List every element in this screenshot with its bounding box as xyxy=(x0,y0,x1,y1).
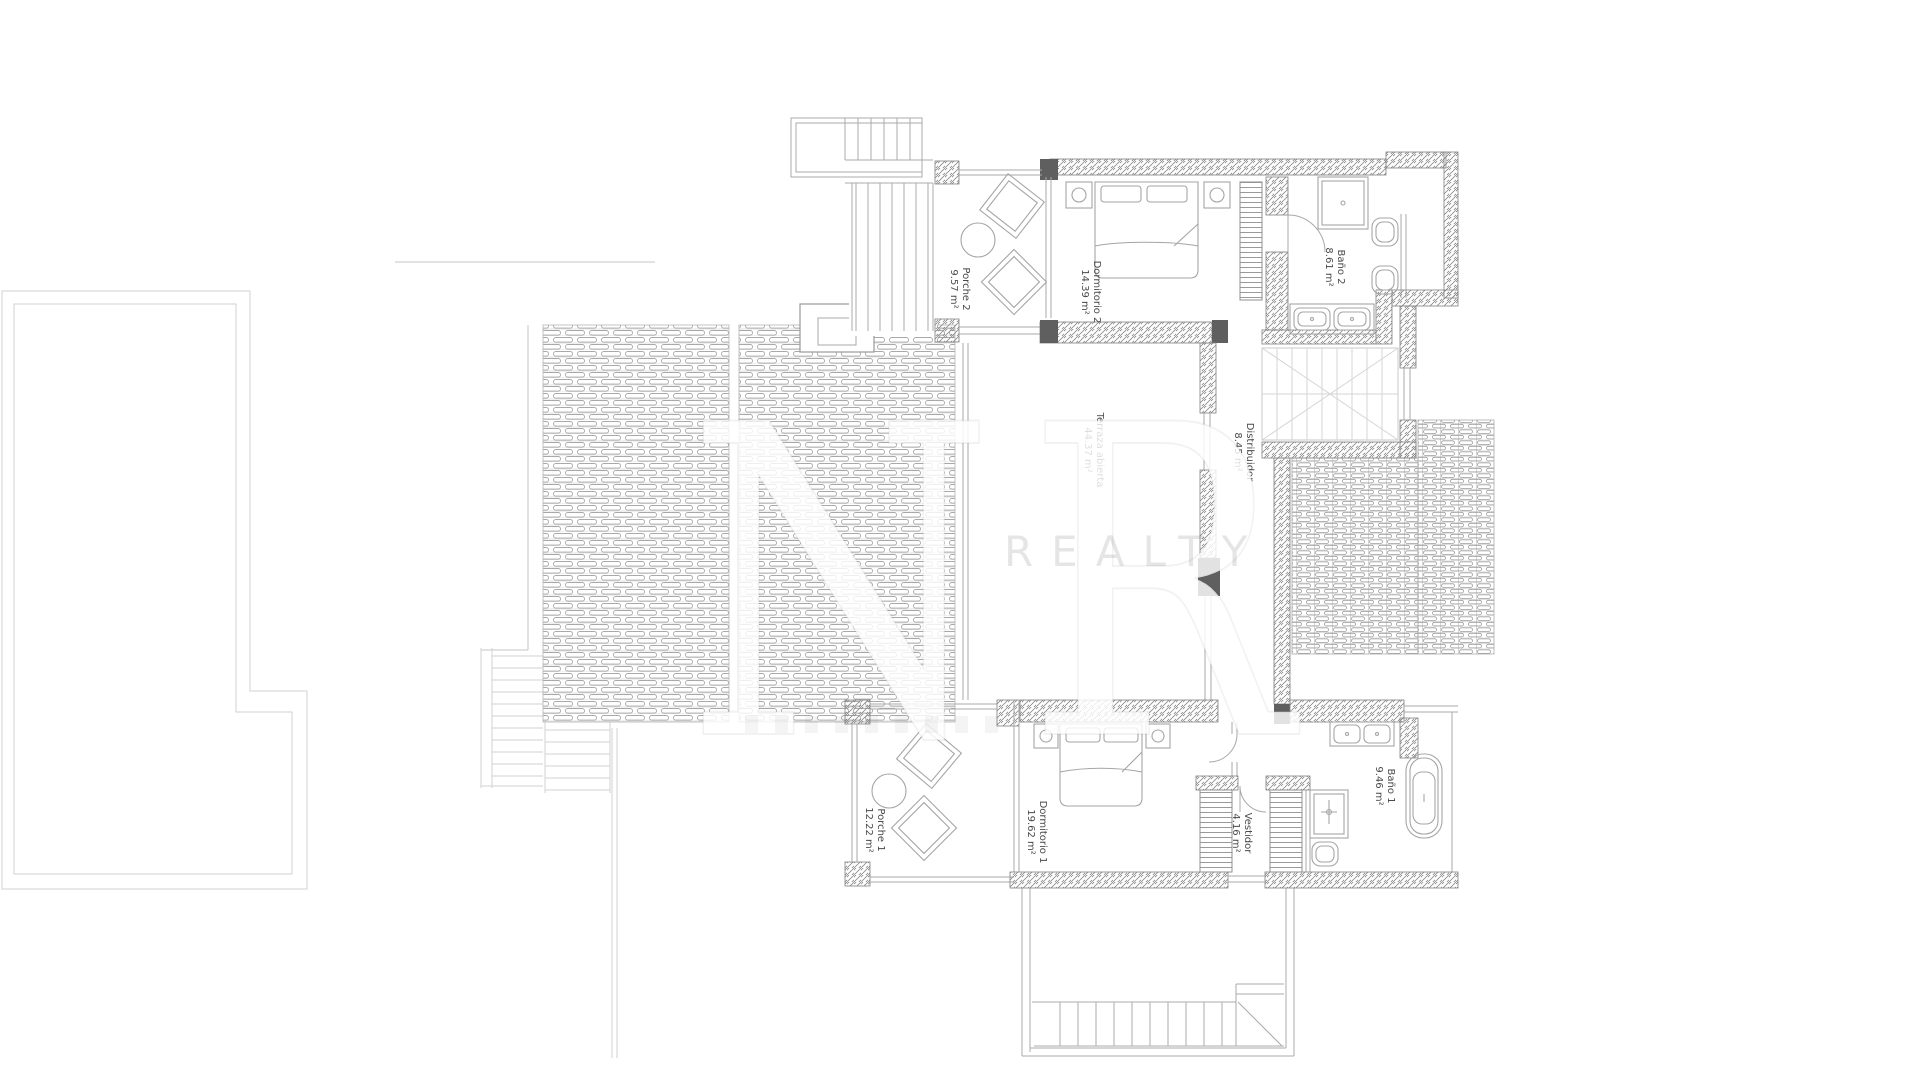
room-name: Porche 2 xyxy=(960,267,971,310)
pool xyxy=(2,291,307,889)
room-area: 9.57 m² xyxy=(948,269,959,308)
double-sink xyxy=(1290,304,1374,334)
bathtub xyxy=(1406,754,1442,838)
floor-plan-page: Porche 2 9.57 m² Dormitorio 2 14.39 m² B… xyxy=(0,0,1920,1080)
room-name: Dormitorio 2 xyxy=(1091,261,1102,324)
watermark-realty-text: REALTY xyxy=(1004,527,1265,576)
label-bano-1: Baño 1 9.46 m² xyxy=(1373,766,1396,805)
room-name: Baño 2 xyxy=(1335,250,1346,285)
nightstand xyxy=(1066,182,1092,208)
armchair xyxy=(981,249,1046,314)
room-name: Baño 1 xyxy=(1385,769,1396,804)
watermark-logo: NR xyxy=(686,335,1322,836)
floor-plan-drawing: Porche 2 9.57 m² Dormitorio 2 14.39 m² B… xyxy=(0,0,1920,1080)
exterior-stairs-top xyxy=(791,116,937,336)
room-area: 8.61 m² xyxy=(1323,247,1334,286)
shower xyxy=(1318,177,1368,229)
wardrobe xyxy=(1240,182,1262,300)
armchair xyxy=(980,174,1045,239)
room-area: 14.39 m² xyxy=(1079,269,1090,315)
watermark-tagline xyxy=(745,716,998,733)
balcony xyxy=(1022,888,1294,1056)
watermark: NR REALTY xyxy=(686,335,1322,836)
bed xyxy=(1095,182,1198,278)
label-porche-2: Porche 2 9.57 m² xyxy=(948,267,971,310)
double-sink xyxy=(1330,722,1394,746)
room-area: 9.46 m² xyxy=(1373,766,1384,805)
label-dormitorio-2: Dormitorio 2 14.39 m² xyxy=(1079,261,1102,324)
nightstand xyxy=(1204,182,1230,208)
label-bano-2: Baño 2 8.61 m² xyxy=(1323,247,1346,286)
round-table xyxy=(961,223,995,257)
